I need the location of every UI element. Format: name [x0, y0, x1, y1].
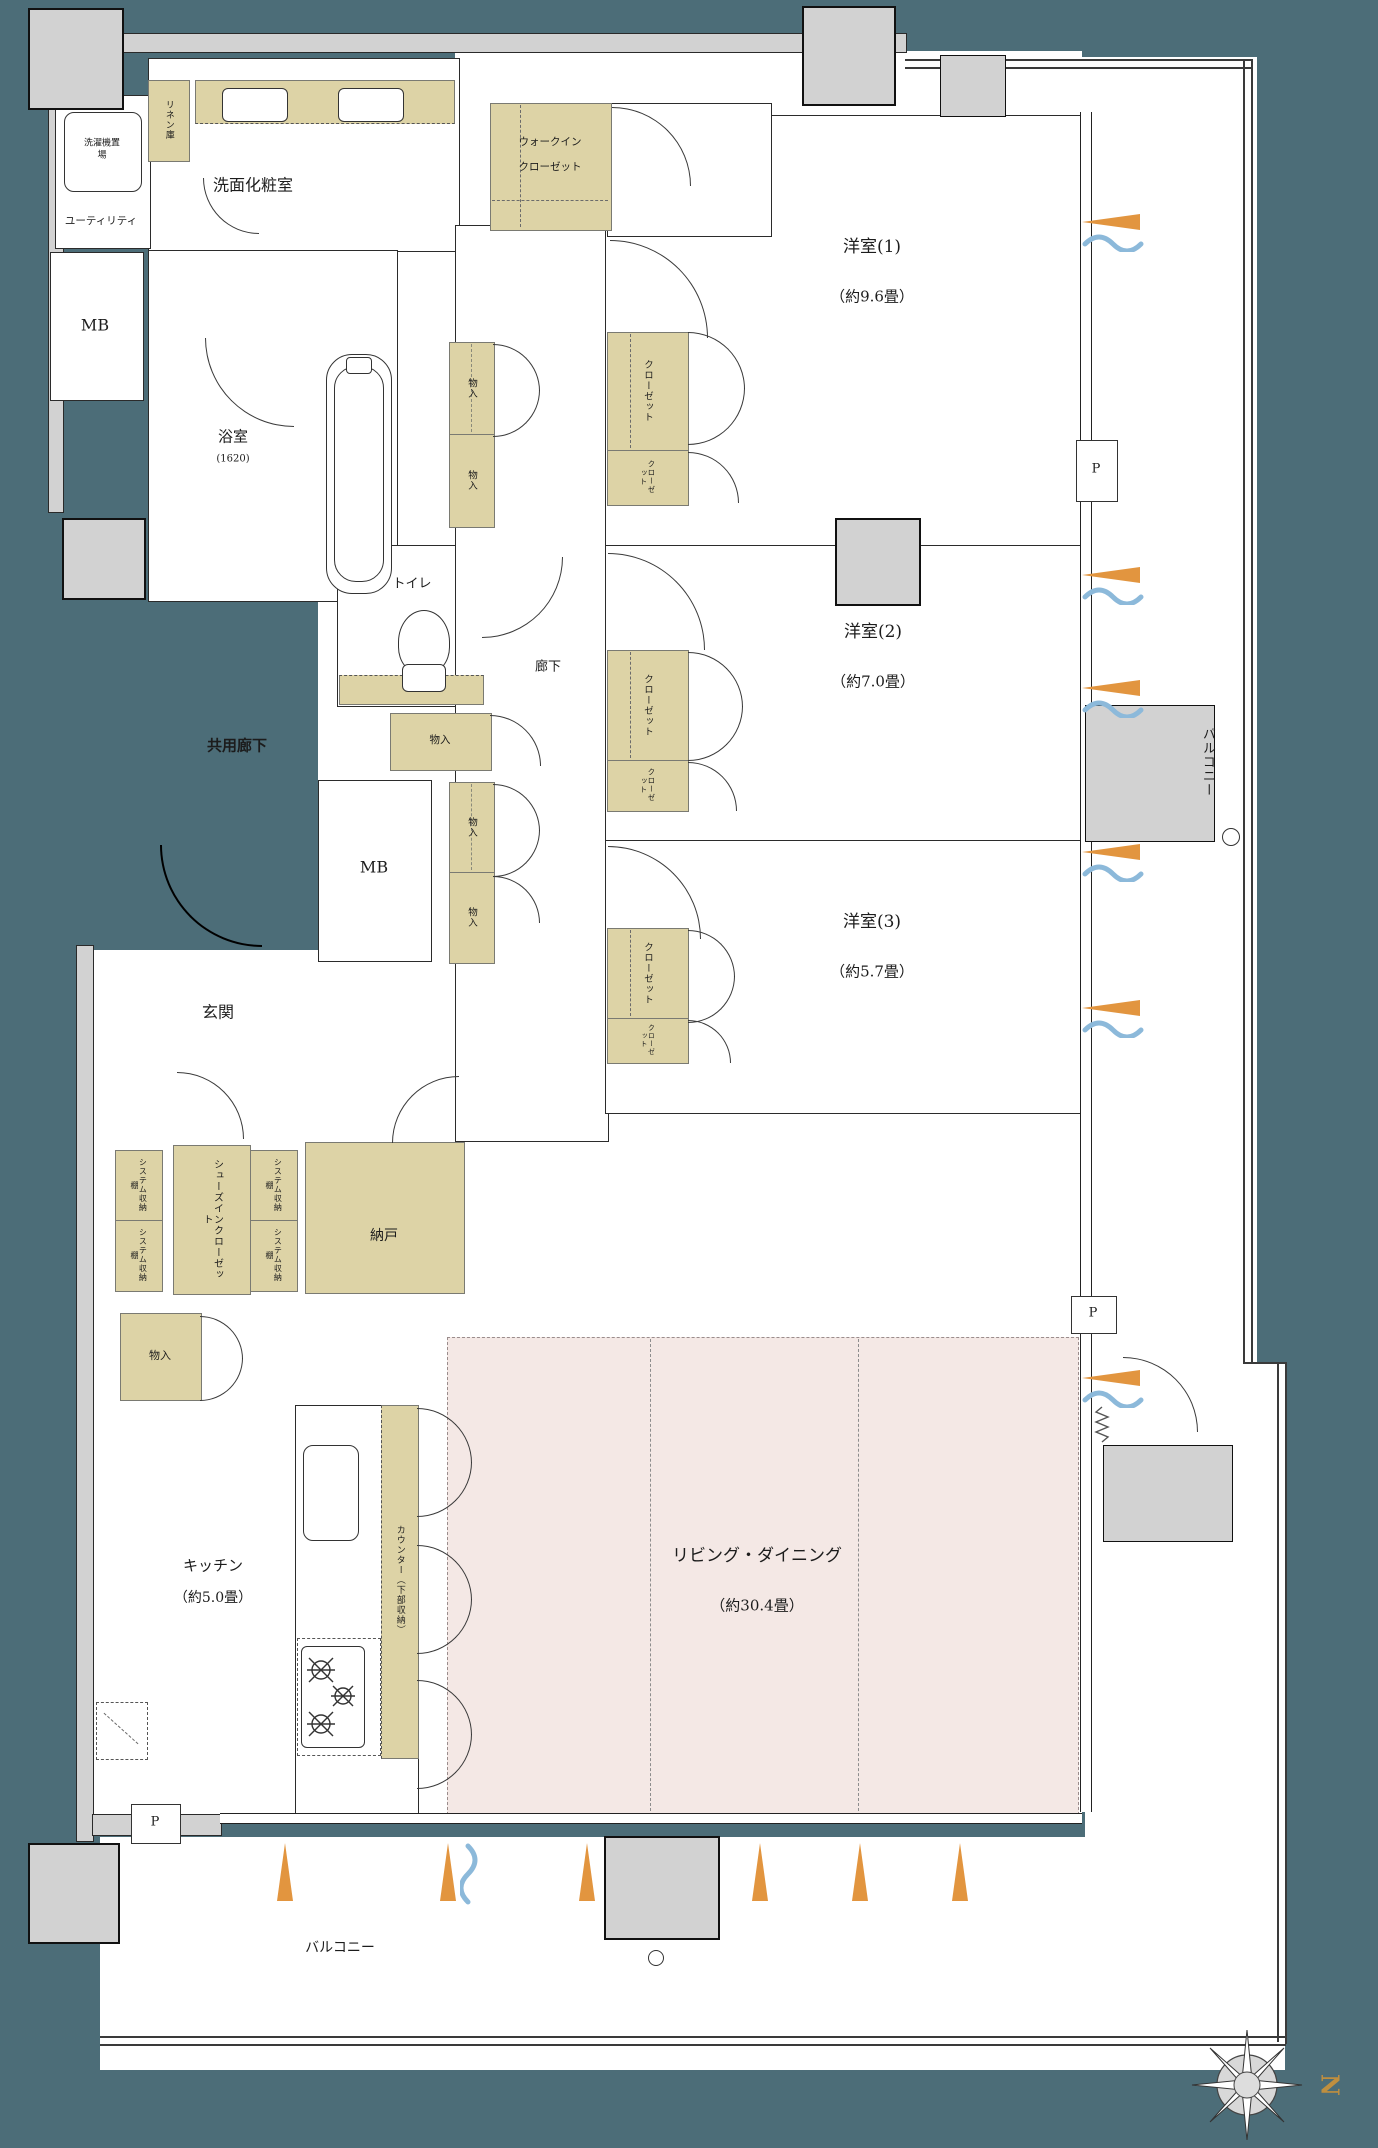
label-living: リビング・ダイニング: [672, 1545, 842, 1567]
label-system-shelf: システム収納棚: [130, 1156, 147, 1214]
label-mb1: MB: [81, 316, 109, 337]
label-common-corridor: 共用廊下: [207, 736, 267, 756]
kitchen-sink: [303, 1445, 359, 1541]
label-bedroom1: 洋室(1): [843, 236, 901, 258]
window-marker-icon: [1082, 1000, 1140, 1016]
label-system-shelf: システム収納棚: [265, 1156, 282, 1214]
stove-burners-icon: [303, 1648, 361, 1744]
label-mb2: MB: [360, 858, 388, 879]
pillar-top-mid: [802, 6, 896, 106]
pillar-bottom-mid: [604, 1836, 720, 1940]
label-monoire: 物入: [466, 368, 476, 408]
label-corridor: 廊下: [535, 660, 561, 677]
toilet-seat: [402, 664, 446, 692]
label-bedroom1-size: （約9.6畳）: [830, 287, 914, 307]
wall-east-window: [1080, 112, 1092, 1812]
bathtub-faucet: [346, 357, 372, 374]
compass-north-label: N: [1314, 2074, 1345, 2096]
label-monoire: 物入: [149, 1349, 171, 1363]
railing-bottom2: [100, 2044, 1286, 2046]
kitchen-floor-drain: [96, 1702, 148, 1760]
window-marker-icon: [1082, 680, 1140, 696]
label-closet: クローゼット: [640, 1021, 655, 1059]
pillar-bottom-left: [28, 1843, 120, 1944]
railing-se2: [1285, 1362, 1287, 2044]
label-pipe: P: [1089, 1306, 1098, 1323]
airflow-icon: [460, 1843, 478, 1905]
label-balcony-bottom: バルコニー: [305, 1939, 375, 1957]
railing-right2: [1251, 59, 1253, 1364]
label-system-shelf: システム収納棚: [130, 1226, 147, 1284]
airflow-icon: [1082, 234, 1144, 252]
label-pipe: P: [151, 1815, 160, 1832]
living-divider-1: [650, 1339, 651, 1811]
railing-right: [1243, 59, 1245, 1364]
sink-left: [222, 88, 288, 122]
label-closet: クローゼット: [639, 456, 655, 498]
label-bedroom3: 洋室(3): [843, 911, 901, 933]
window-marker-icon: [440, 1843, 456, 1901]
label-entrance: 玄関: [202, 1003, 234, 1024]
label-powder-room: 洗面化粧室: [213, 176, 293, 197]
room-living: [447, 1337, 1079, 1815]
door-entry: [160, 845, 262, 947]
railing-se: [1277, 1362, 1279, 2042]
wall-left-lower: [76, 945, 94, 1842]
window-marker-icon: [1082, 567, 1140, 583]
label-monoire: 物入: [466, 897, 476, 937]
railing-jog: [1243, 1362, 1285, 1364]
window-marker-icon: [1082, 1370, 1140, 1386]
airflow-icon: [1082, 1020, 1144, 1038]
label-kitchen: キッチン: [183, 1556, 243, 1576]
label-bedroom2-size: （約7.0畳）: [831, 672, 915, 692]
pillar-se: [1103, 1445, 1233, 1542]
wall-top: [108, 33, 907, 53]
airflow-icon: [1082, 1390, 1144, 1408]
window-marker-icon: [1082, 844, 1140, 860]
airflow-icon: [1082, 587, 1144, 605]
label-storeroom: 納戸: [370, 1227, 398, 1245]
label-closet: クローゼット: [642, 655, 652, 755]
window-marker-icon: [1082, 214, 1140, 230]
wic-pipe-h: [492, 200, 608, 201]
pillar-left-mid: [62, 518, 146, 600]
closet-pipe: [630, 334, 631, 448]
label-monoire: 物入: [466, 807, 476, 847]
label-closet: クローゼット: [642, 931, 652, 1015]
drain-icon: [648, 1950, 664, 1966]
airflow-icon: [1082, 700, 1144, 718]
label-closet: クローゼット: [639, 765, 655, 805]
label-living-size: （約30.4畳）: [710, 1596, 803, 1616]
label-kitchen-size: （約5.0畳）: [174, 1589, 252, 1607]
sink-right: [338, 88, 404, 122]
label-system-shelf: システム収納棚: [265, 1226, 282, 1284]
closet-pipe: [630, 930, 631, 1016]
label-closet: クローゼット: [642, 339, 652, 444]
room-storeroom: [305, 1142, 465, 1294]
railing-bottom: [100, 2036, 1286, 2038]
pillar-top-left: [28, 8, 124, 110]
label-pipe: P: [1092, 462, 1101, 479]
label-bath: 浴室: [218, 427, 248, 447]
label-wic-line1: ウォークイン: [519, 136, 582, 150]
label-shoes-closet: シューズインクローゼット: [201, 1154, 222, 1284]
label-bedroom3-size: （約5.7畳）: [830, 962, 914, 982]
pillar-right-balcony: [1085, 705, 1215, 842]
label-wic-line2: クローゼット: [519, 161, 582, 175]
floor-plan-canvas: N 共用廊下 玄関 廊下 洗面化粧室 ユーティリティ 洗濯機置場 リネン庫 浴室…: [0, 0, 1378, 2148]
pillar-mid: [835, 518, 921, 606]
closet-pipe: [630, 652, 631, 758]
label-balcony-right: バルコニー: [1200, 702, 1214, 822]
living-divider-2: [858, 1339, 859, 1811]
window-marker-icon: [752, 1843, 768, 1901]
airflow-icon: [1082, 864, 1144, 882]
label-linen: リネン庫: [163, 87, 172, 153]
label-counter: カウンター（下部収納）: [394, 1485, 403, 1675]
label-washer: 洗濯機置場: [81, 138, 123, 161]
label-monoire: 物入: [466, 460, 476, 500]
window-marker-icon: [852, 1843, 868, 1901]
compass-icon: [1190, 2028, 1304, 2142]
window-marker-icon: [952, 1843, 968, 1901]
pillar-top-right: [940, 55, 1006, 117]
label-toilet: トイレ: [392, 577, 431, 594]
label-monoire: 物入: [430, 734, 451, 748]
spring-icon: [1094, 1406, 1110, 1444]
label-bath-size: (1620): [216, 453, 249, 466]
label-bedroom2: 洋室(2): [844, 621, 902, 643]
wall-south-window: [220, 1813, 1082, 1824]
drain-icon: [1222, 828, 1240, 846]
window-marker-icon: [579, 1843, 595, 1901]
label-utility: ユーティリティ: [65, 215, 137, 229]
window-marker-icon: [277, 1843, 293, 1901]
bathtub-inner: [334, 366, 384, 582]
